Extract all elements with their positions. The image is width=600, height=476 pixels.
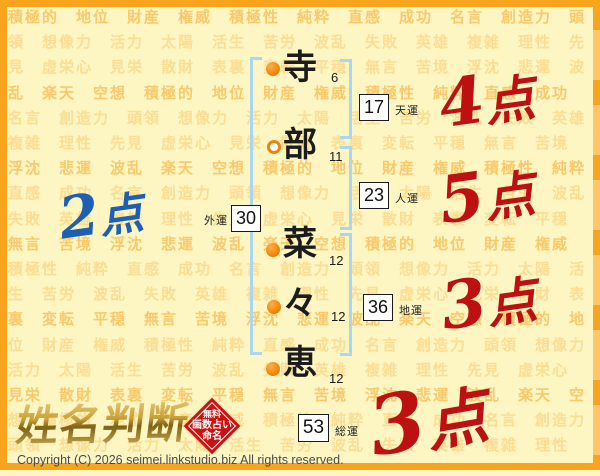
jinun-label: 人運 [395, 190, 419, 206]
stamp-line-2: 画数占い [192, 420, 232, 432]
char-bullet-icon [266, 243, 280, 257]
stamp-line-1: 無料 [203, 409, 221, 419]
chiun-score: 3点 [437, 263, 540, 341]
seimei-handan-result-page: { "page": { "title": "姓名判断" }, "watermar… [0, 0, 600, 470]
stamp-line-3: 命名 [202, 431, 222, 443]
name-char-2: 部 [280, 128, 320, 164]
char-bullet-icon [266, 62, 280, 76]
stroke-count-4: 12 [331, 309, 345, 324]
seimei-handan-logo[interactable]: 姓名判断 [13, 390, 193, 454]
gaiun-value-box: 30 [231, 205, 261, 232]
gaiun-score: 2点 [55, 179, 146, 247]
tenun-score: 4点 [435, 61, 538, 139]
stroke-count-1: 6 [331, 70, 338, 85]
char-bullet-icon [267, 300, 281, 314]
char-bullet-hollow-icon [267, 140, 281, 154]
stroke-count-5: 12 [329, 371, 343, 386]
souun-value-box: 53 [298, 414, 329, 442]
gaiun-label: 外運 [204, 212, 228, 228]
name-char-4: 々 [280, 287, 320, 323]
tenun-value-box: 17 [359, 94, 389, 121]
name-char-3: 菜 [280, 227, 320, 263]
chiun-bracket [340, 233, 352, 356]
tenun-bracket [340, 59, 352, 139]
name-char-1: 寺 [280, 51, 320, 87]
souun-label: 総運 [335, 423, 359, 439]
stroke-count-2: 11 [329, 149, 343, 164]
free-stroke-fortune-stamp[interactable]: 無料 画数占い 命名 [185, 399, 239, 453]
char-bullet-icon [266, 362, 280, 376]
chiun-label: 地運 [399, 302, 423, 318]
jinun-score: 5点 [435, 157, 538, 235]
copyright-text: Copyright (C) 2026 seimei.linkstudio.biz… [17, 453, 344, 467]
tenun-label: 天運 [395, 102, 419, 118]
stroke-count-3: 12 [329, 253, 343, 268]
name-char-5: 恵 [280, 346, 320, 382]
chiun-value-box: 36 [363, 294, 393, 321]
jinun-value-box: 23 [359, 182, 389, 209]
